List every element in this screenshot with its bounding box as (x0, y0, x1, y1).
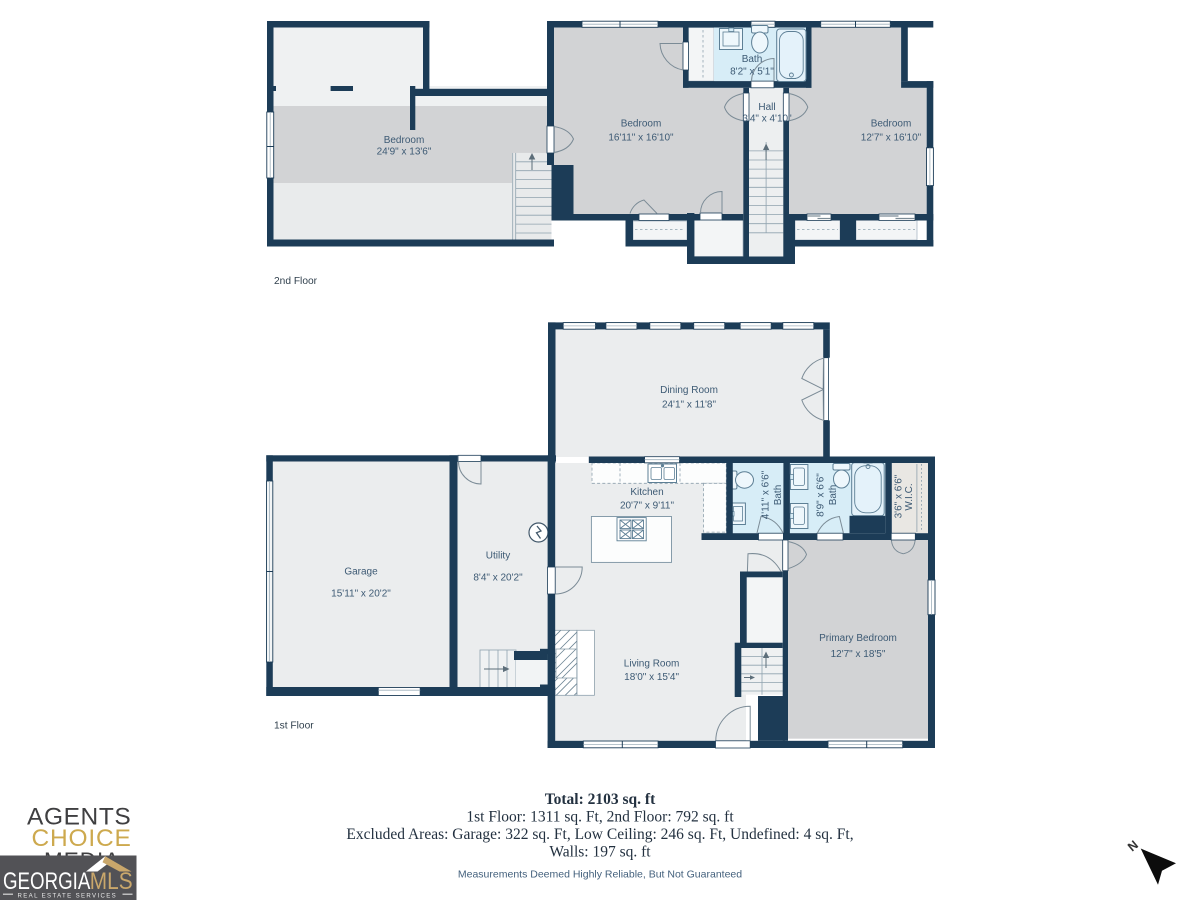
svg-text:Excluded Areas: Garage: 322 sq: Excluded Areas: Garage: 322 sq. Ft, Low … (346, 826, 853, 843)
svg-text:3'4" x 4'10": 3'4" x 4'10" (742, 114, 792, 125)
svg-text:Dining Room: Dining Room (660, 385, 718, 396)
svg-text:Total: 2103 sq. ft: Total: 2103 sq. ft (545, 791, 656, 808)
svg-text:8'4" x 20'2": 8'4" x 20'2" (473, 573, 523, 584)
svg-text:2nd Floor: 2nd Floor (274, 276, 318, 287)
svg-text:W.I.C.: W.I.C. (904, 483, 915, 510)
svg-text:Living Room: Living Room (624, 659, 680, 670)
svg-text:Walls: 197 sq. ft: Walls: 197 sq. ft (549, 844, 651, 861)
svg-text:REAL ESTATE SERVICES: REAL ESTATE SERVICES (18, 892, 118, 899)
svg-text:GEORGIA: GEORGIA (3, 868, 91, 895)
svg-text:Bedroom: Bedroom (621, 119, 662, 130)
svg-text:MLS: MLS (90, 866, 133, 894)
svg-text:8'9" x 6'6": 8'9" x 6'6" (816, 473, 827, 517)
svg-text:24'9" x 13'6": 24'9" x 13'6" (377, 147, 432, 158)
svg-text:15'11" x 20'2": 15'11" x 20'2" (331, 589, 391, 600)
svg-text:Bedroom: Bedroom (871, 119, 912, 130)
svg-text:18'0" x 15'4": 18'0" x 15'4" (624, 672, 679, 683)
svg-text:Bath: Bath (742, 54, 763, 65)
svg-text:Primary Bedroom: Primary Bedroom (819, 633, 897, 644)
svg-text:Garage: Garage (344, 567, 378, 578)
svg-text:Utility: Utility (486, 551, 510, 562)
svg-text:Measurements Deemed Highly Rel: Measurements Deemed Highly Reliable, But… (458, 869, 742, 881)
svg-text:16'11" x 16'10": 16'11" x 16'10" (608, 133, 674, 144)
svg-text:4'11" x 6'6": 4'11" x 6'6" (761, 470, 772, 519)
svg-text:1st Floor: 1311 sq. Ft, 2nd Fl: 1st Floor: 1311 sq. Ft, 2nd Floor: 792 s… (466, 809, 734, 826)
svg-text:Bedroom: Bedroom (384, 135, 425, 146)
svg-text:12'7" x 18'5": 12'7" x 18'5" (831, 649, 886, 660)
svg-text:24'1" x 11'8": 24'1" x 11'8" (662, 400, 717, 411)
svg-text:Hall: Hall (758, 102, 775, 113)
svg-text:3'6" x 6'6": 3'6" x 6'6" (894, 474, 905, 518)
svg-text:20'7" x 9'11": 20'7" x 9'11" (620, 501, 675, 512)
svg-text:8'2" x 5'1": 8'2" x 5'1" (730, 67, 774, 78)
svg-text:Kitchen: Kitchen (630, 487, 663, 498)
svg-text:1st Floor: 1st Floor (274, 721, 314, 732)
svg-text:12'7" x 16'10": 12'7" x 16'10" (861, 133, 922, 144)
svg-text:Bath: Bath (773, 485, 784, 506)
svg-text:Bath: Bath (828, 485, 839, 506)
